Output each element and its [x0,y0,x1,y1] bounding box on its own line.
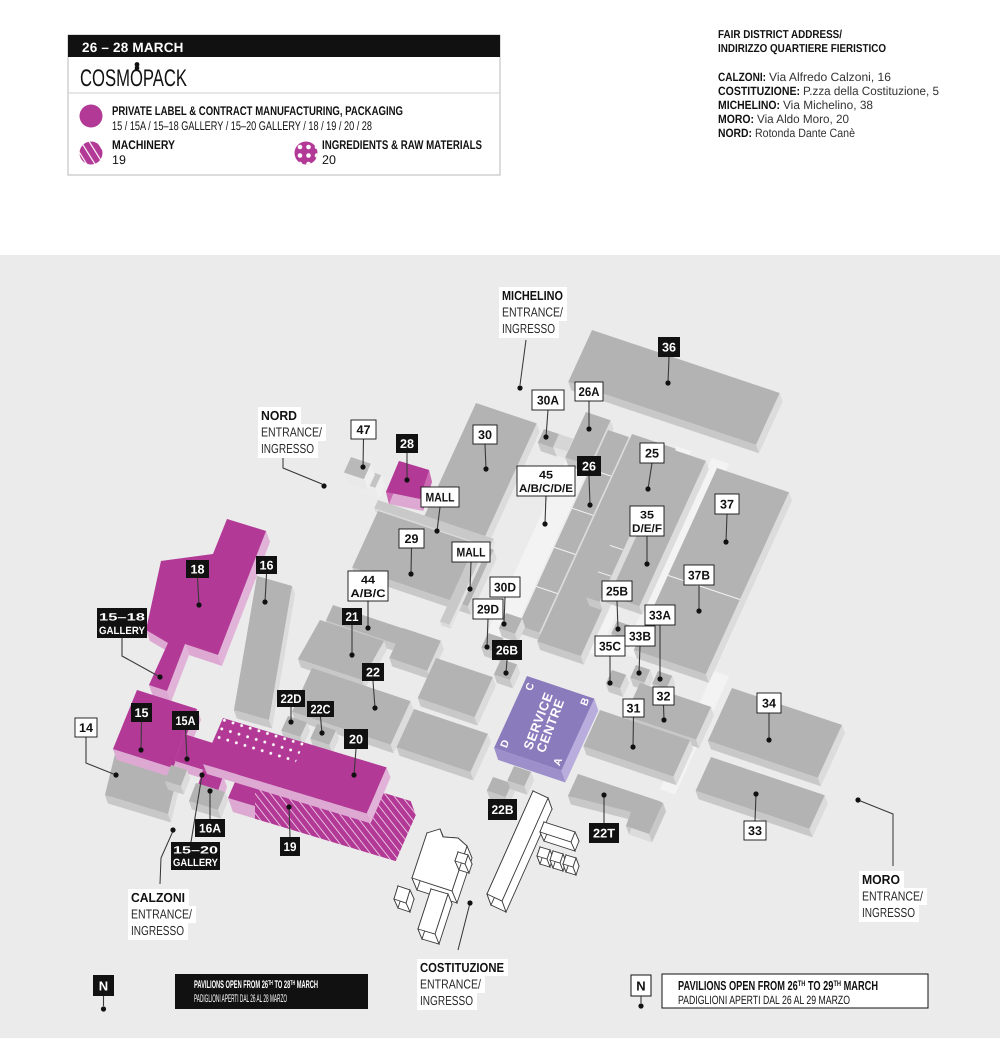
svg-text:GALLERY: GALLERY [173,857,218,869]
svg-text:15 / 15A / 15–18 GALLERY / 15–: 15 / 15A / 15–18 GALLERY / 15–20 GALLERY… [112,119,372,133]
svg-text:MORO: MORO [862,872,900,887]
svg-text:PRIVATE LABEL & CONTRACT MANUF: PRIVATE LABEL & CONTRACT MANUFACTURING, … [112,104,403,118]
svg-text:20: 20 [349,733,363,747]
svg-text:PAVILIONS OPEN FROM 26TH TO 29: PAVILIONS OPEN FROM 26TH TO 29TH MARCH [678,978,878,993]
svg-text:22D: 22D [281,692,302,706]
svg-text:18: 18 [191,563,205,577]
svg-text:FAIR DISTRICT ADDRESS/: FAIR DISTRICT ADDRESS/ [718,29,843,41]
svg-text:CALZONI: CALZONI [131,890,185,905]
svg-text:47: 47 [357,423,371,437]
svg-text:33: 33 [748,824,762,838]
svg-text:21: 21 [346,610,359,624]
svg-text:ENTRANCE/: ENTRANCE/ [131,907,192,922]
svg-text:MACHINERY: MACHINERY [112,138,176,152]
svg-text:D/E/F: D/E/F [632,523,662,535]
svg-text:PADIGLIONI APERTI DAL 26 AL 29: PADIGLIONI APERTI DAL 26 AL 29 MARZO [678,993,850,1007]
svg-text:INDIRIZZO QUARTIERE FIERISTICO: INDIRIZZO QUARTIERE FIERISTICO [718,43,886,55]
svg-text:COSMOPACK: COSMOPACK [80,65,187,92]
svg-text:35C: 35C [599,640,621,654]
svg-text:MALL: MALL [426,491,455,505]
svg-text:26: 26 [582,460,596,474]
svg-text:26B: 26B [496,644,518,658]
svg-text:22: 22 [366,666,380,680]
svg-text:CALZONI:Via Alfredo Calzoni, 1: CALZONI:Via Alfredo Calzoni, 16 [718,70,891,84]
svg-text:N: N [636,979,645,994]
svg-text:MALL: MALL [457,546,486,560]
svg-text:34: 34 [762,697,776,711]
svg-text:32: 32 [657,690,671,704]
svg-text:30: 30 [478,428,492,442]
svg-text:COSTITUZIONE:P.zza della Costi: COSTITUZIONE:P.zza della Costituzione, 5 [718,84,939,98]
svg-text:15: 15 [135,706,149,720]
svg-text:GALLERY: GALLERY [99,625,145,637]
svg-text:16: 16 [260,559,274,573]
svg-text:16A: 16A [199,822,221,836]
svg-text:28: 28 [400,437,414,451]
svg-text:NORD:Rotonda Dante Canè: NORD:Rotonda Dante Canè [718,126,855,140]
svg-text:29: 29 [405,532,419,546]
svg-text:INGRESSO: INGRESSO [261,441,314,456]
svg-text:MICHELINO:Via Michelino, 38: MICHELINO:Via Michelino, 38 [718,98,873,112]
svg-text:19: 19 [284,840,297,854]
svg-text:36: 36 [662,341,676,355]
svg-text:44: 44 [361,575,376,587]
svg-text:PAVILIONS OPEN FROM 26TH TO 28: PAVILIONS OPEN FROM 26TH TO 28TH MARCH [194,979,318,991]
svg-text:37: 37 [720,498,734,512]
svg-text:MORO:Via Aldo Moro, 20: MORO:Via Aldo Moro, 20 [718,112,849,126]
svg-text:14: 14 [79,721,93,735]
svg-text:22B: 22B [492,803,514,817]
svg-text:INGRESSO: INGRESSO [420,993,473,1008]
svg-text:COSTITUZIONE: COSTITUZIONE [420,960,504,975]
svg-text:19: 19 [112,153,126,167]
svg-text:30D: 30D [494,581,516,595]
svg-text:N: N [99,979,108,994]
svg-text:25B: 25B [606,585,628,599]
svg-text:ENTRANCE/: ENTRANCE/ [261,425,322,440]
svg-text:A/B/C: A/B/C [351,588,386,600]
svg-text:A/B/C/D/E: A/B/C/D/E [519,483,573,495]
svg-text:29D: 29D [477,603,499,617]
svg-text:INGRESSO: INGRESSO [131,923,184,938]
svg-text:15A: 15A [176,714,196,728]
svg-text:33A: 33A [649,609,671,623]
svg-text:26A: 26A [579,385,600,399]
svg-text:15–20: 15–20 [173,845,218,857]
svg-text:35: 35 [640,510,654,522]
svg-text:INGRESSO: INGRESSO [502,321,555,336]
svg-text:ENTRANCE/: ENTRANCE/ [420,977,481,992]
svg-text:45: 45 [539,470,553,482]
svg-text:15–18: 15–18 [99,612,145,624]
svg-text:INGRESSO: INGRESSO [862,905,915,920]
svg-text:26 – 28 MARCH: 26 – 28 MARCH [82,40,184,55]
svg-text:25: 25 [645,447,659,461]
svg-text:37B: 37B [688,569,710,583]
svg-text:33B: 33B [629,630,651,644]
svg-text:30A: 30A [537,394,559,408]
svg-text:PADIGLIONI APERTI DAL 26 AL 28: PADIGLIONI APERTI DAL 26 AL 28 MARZO [194,993,287,1005]
svg-text:INGREDIENTS & RAW MATERIALS: INGREDIENTS & RAW MATERIALS [322,138,482,152]
svg-text:22C: 22C [311,703,331,717]
svg-text:20: 20 [322,153,336,167]
svg-text:ENTRANCE/: ENTRANCE/ [502,305,563,320]
svg-text:31: 31 [627,702,641,716]
svg-text:MICHELINO: MICHELINO [502,288,563,303]
svg-text:NORD: NORD [261,408,297,423]
svg-text:22T: 22T [593,827,615,841]
svg-text:ENTRANCE/: ENTRANCE/ [862,889,923,904]
